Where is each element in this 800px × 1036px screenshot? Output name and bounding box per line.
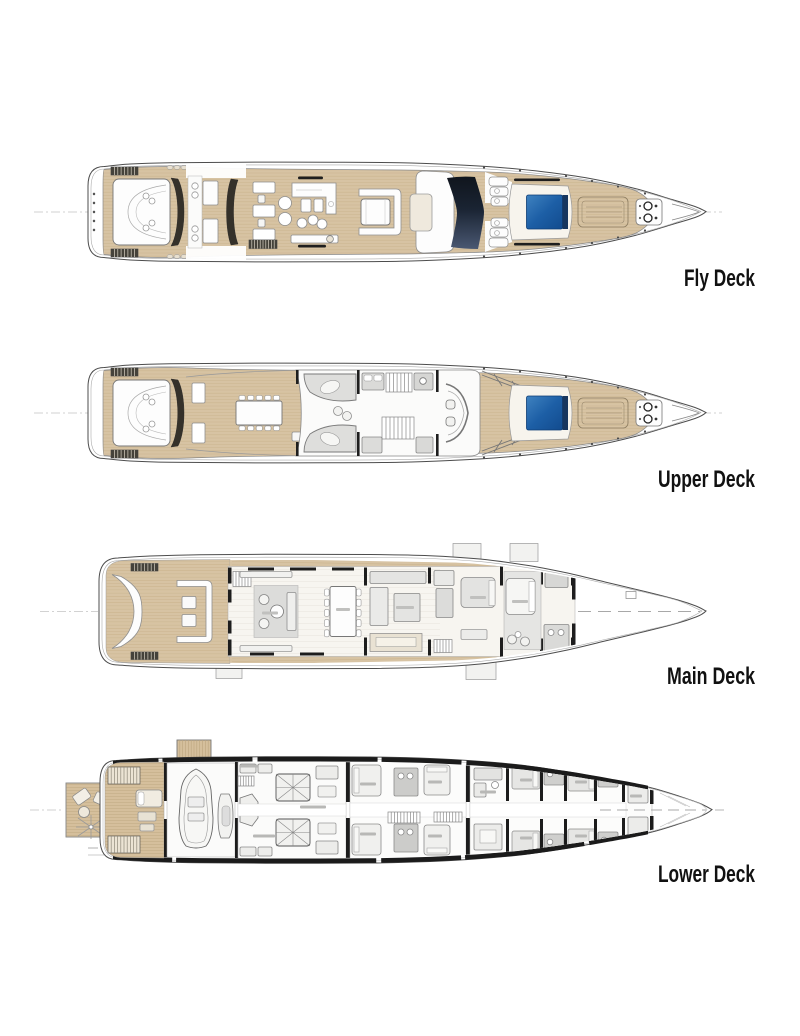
svg-text:Lower Deck: Lower Deck bbox=[658, 861, 755, 888]
svg-text:Upper Deck: Upper Deck bbox=[658, 466, 755, 493]
svg-text:Main Deck: Main Deck bbox=[667, 663, 755, 690]
svg-text:Fly Deck: Fly Deck bbox=[684, 265, 755, 292]
